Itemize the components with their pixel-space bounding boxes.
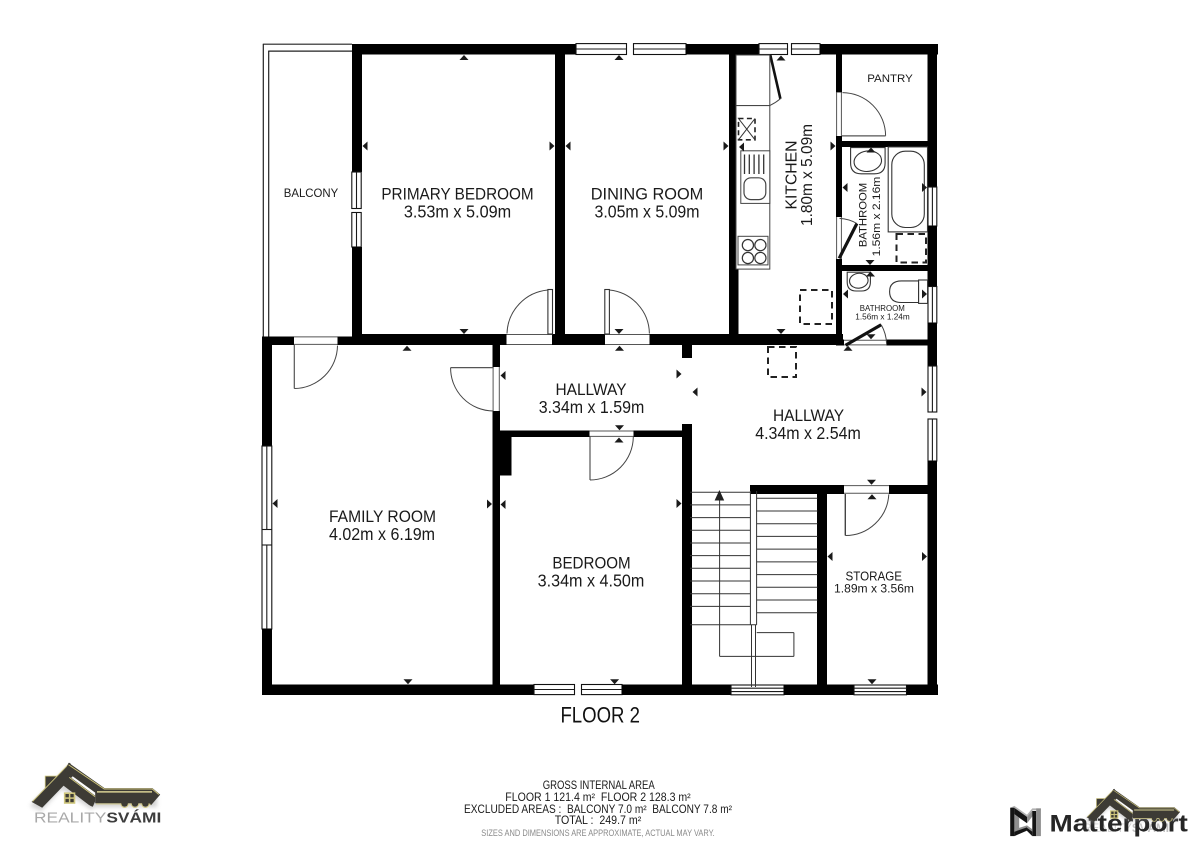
svg-text:1.56m x 1.24m: 1.56m x 1.24m (855, 312, 910, 322)
svg-text:3.53m x 5.09m: 3.53m x 5.09m (404, 202, 511, 222)
svg-text:1.89m x 3.56m: 1.89m x 3.56m (834, 581, 914, 595)
svg-text:3.34m x 4.50m: 3.34m x 4.50m (538, 570, 645, 590)
svg-text:BALCONY: BALCONY (284, 188, 339, 200)
svg-text:3.34m x 1.59m: 3.34m x 1.59m (539, 397, 645, 417)
svg-text:PANTRY: PANTRY (867, 73, 913, 85)
svg-text:TOTAL : 249.7 m²: TOTAL : 249.7 m² (555, 814, 642, 827)
svg-text:4.02m x 6.19m: 4.02m x 6.19m (329, 524, 435, 544)
svg-text:3.05m x 5.09m: 3.05m x 5.09m (595, 202, 700, 222)
svg-text:1.56m x 2.16m: 1.56m x 2.16m (871, 177, 883, 257)
svg-text:REALITYSVÁMI: REALITYSVÁMI (34, 810, 161, 827)
svg-text:BATHROOM: BATHROOM (857, 183, 869, 247)
svg-text:1.80m x 5.09m: 1.80m x 5.09m (799, 124, 816, 226)
svg-text:SIZES AND DIMENSIONS ARE APPRO: SIZES AND DIMENSIONS ARE APPROXIMATE, AC… (481, 828, 714, 838)
svg-text:4.34m x 2.54m: 4.34m x 2.54m (755, 423, 861, 443)
svg-text:FLOOR 2: FLOOR 2 (560, 703, 640, 728)
